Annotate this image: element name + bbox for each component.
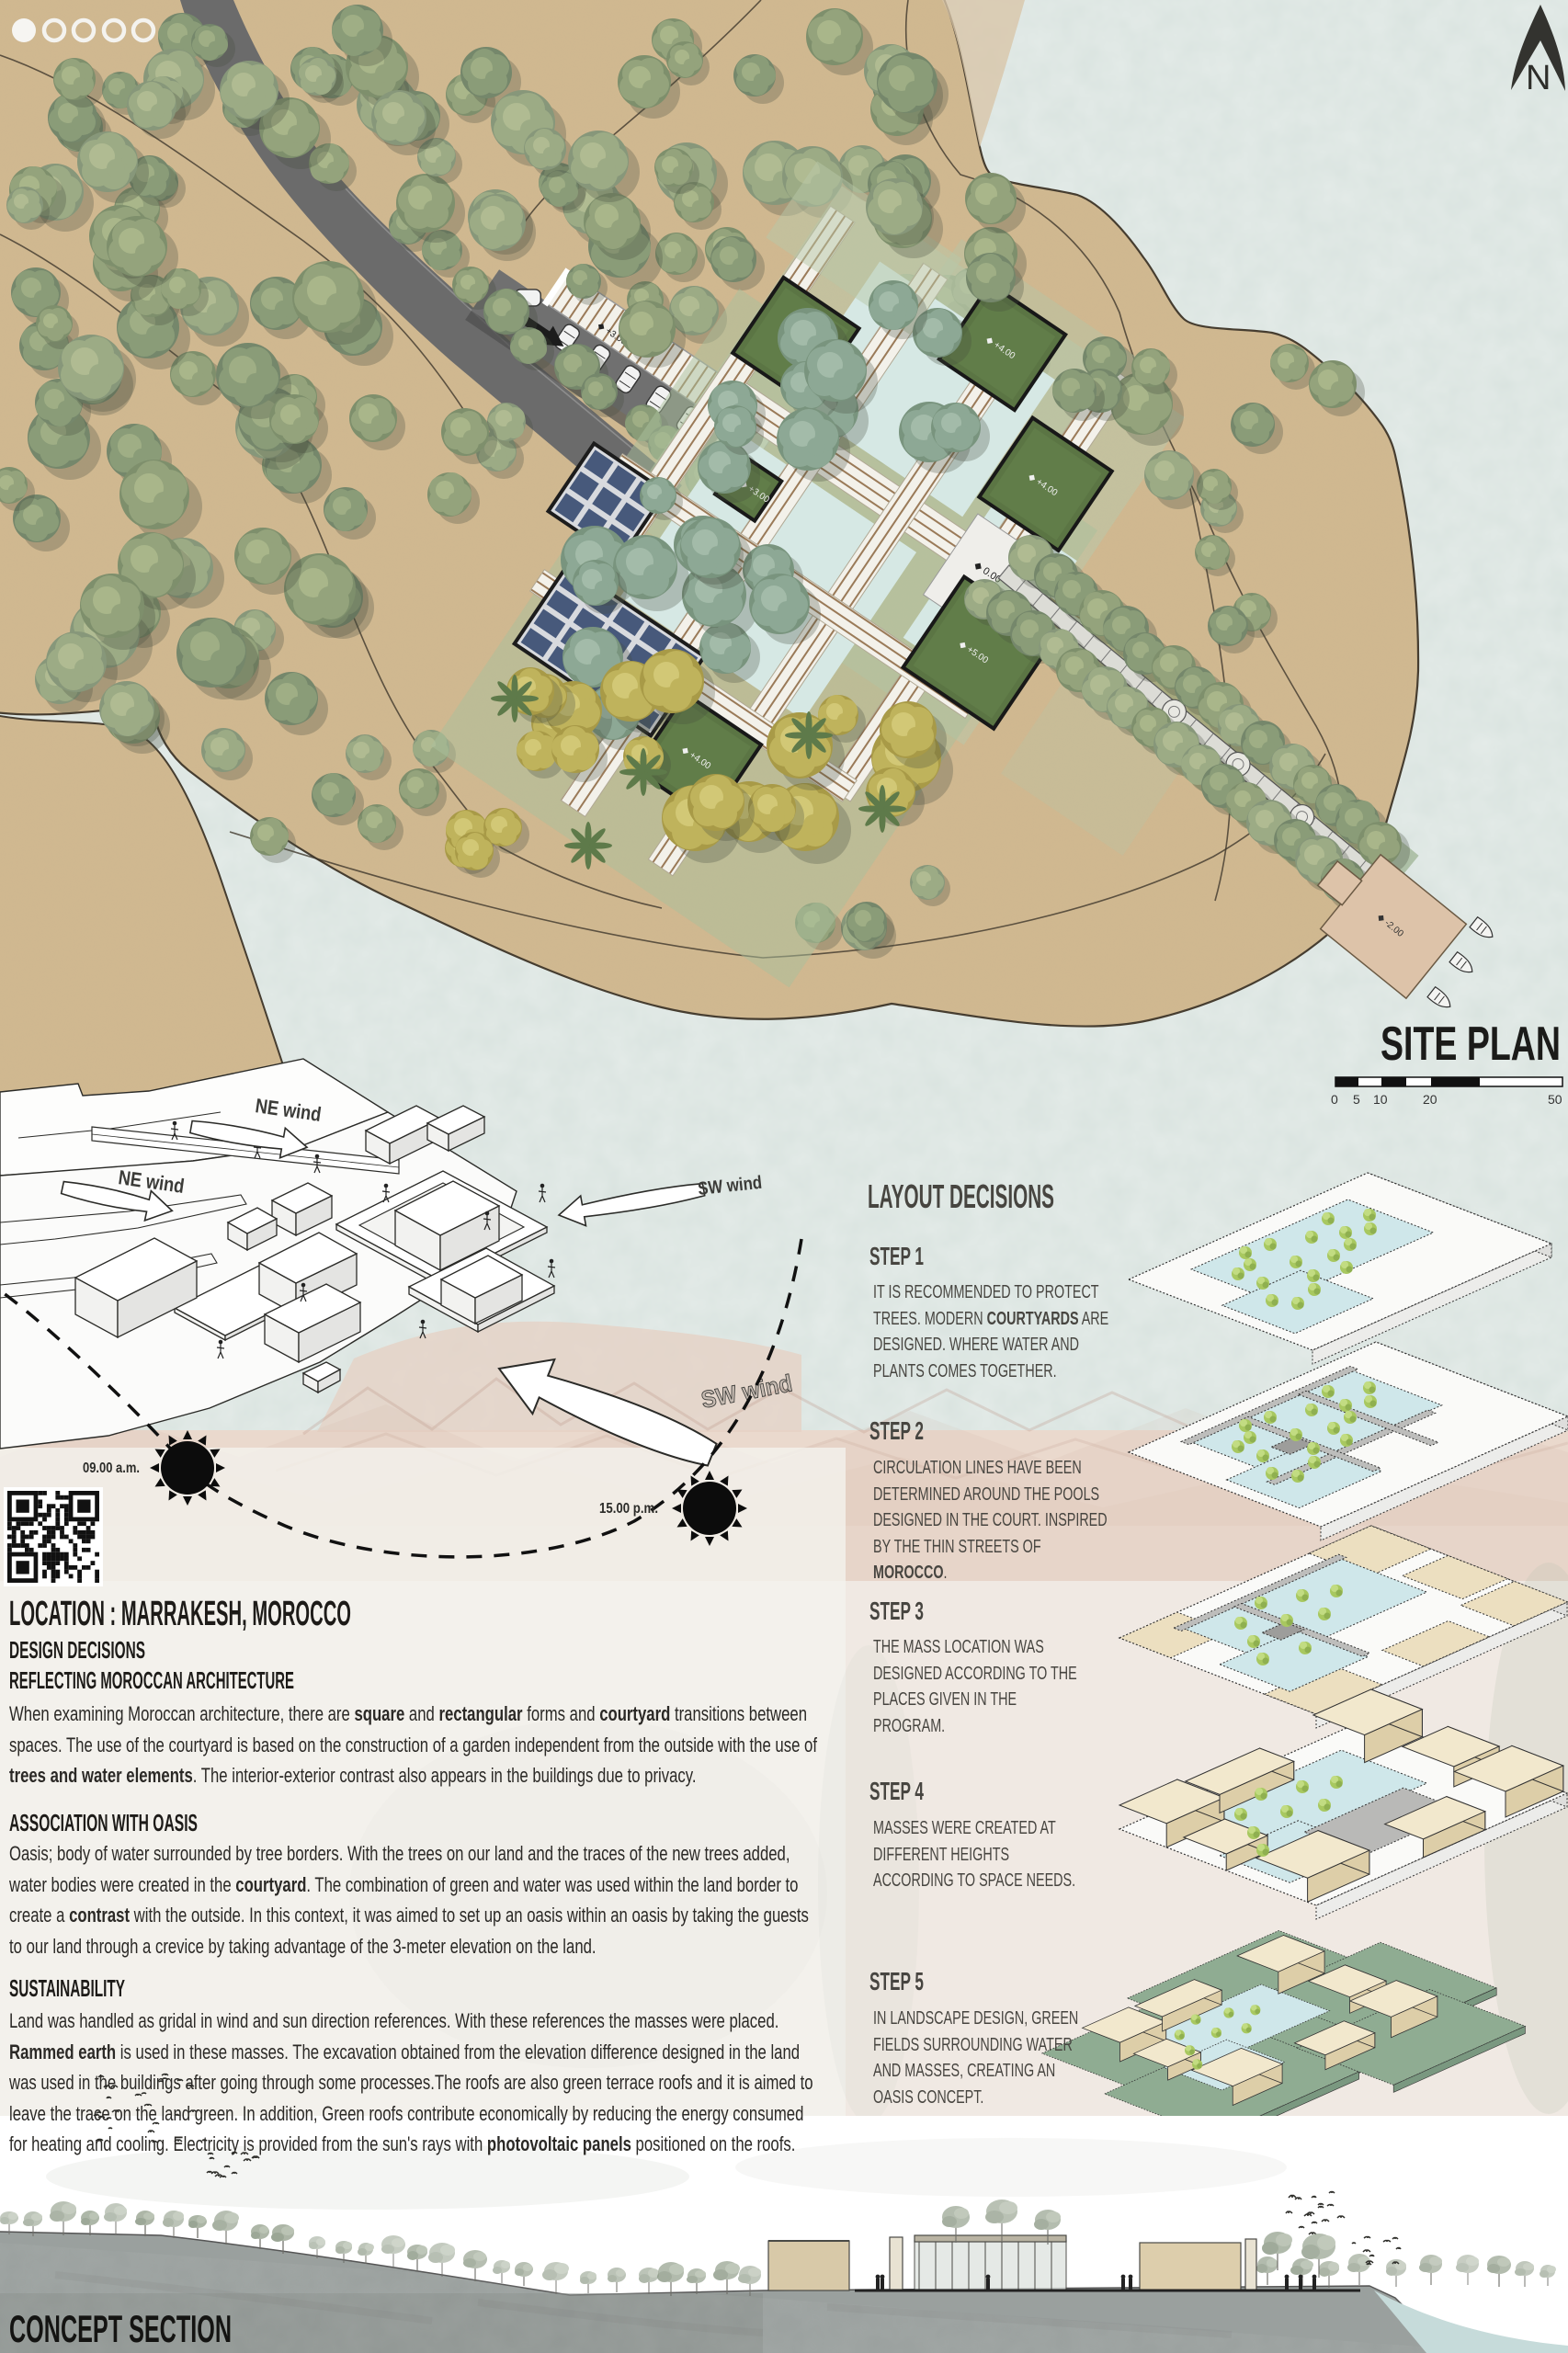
svg-text:0: 0	[1331, 1092, 1338, 1107]
svg-text:LOCATION : MARRAKESH, MOROCCO: LOCATION : MARRAKESH, MOROCCO	[9, 1595, 351, 1633]
svg-text:15.00 p.m.: 15.00 p.m.	[599, 1501, 658, 1517]
svg-text:SUSTAINABILITY: SUSTAINABILITY	[9, 1974, 125, 2002]
svg-text:LAYOUT DECISIONS: LAYOUT DECISIONS	[868, 1177, 1054, 1215]
svg-text:SITE PLAN: SITE PLAN	[1381, 1017, 1561, 1071]
svg-text:N: N	[1526, 59, 1551, 97]
svg-text:09.00 a.m.: 09.00 a.m.	[83, 1461, 140, 1476]
svg-text:50: 50	[1548, 1092, 1562, 1107]
svg-text:5: 5	[1353, 1092, 1360, 1107]
svg-text:10: 10	[1373, 1092, 1388, 1107]
svg-text:DESIGN DECISIONS: DESIGN DECISIONS	[9, 1636, 145, 1664]
svg-text:CONCEPT SECTION: CONCEPT SECTION	[9, 2307, 232, 2350]
svg-text:STEP 1: STEP 1	[869, 1242, 924, 1270]
svg-text:STEP 5: STEP 5	[869, 1967, 924, 1995]
svg-text:STEP 4: STEP 4	[869, 1777, 924, 1805]
svg-text:20: 20	[1423, 1092, 1437, 1107]
svg-text:STEP 3: STEP 3	[869, 1597, 924, 1625]
svg-text:REFLECTING MOROCCAN ARCHITECTU: REFLECTING MOROCCAN ARCHITECTURE	[9, 1666, 294, 1694]
svg-text:STEP 2: STEP 2	[869, 1416, 924, 1445]
svg-text:ASSOCIATION WITH OASIS: ASSOCIATION WITH OASIS	[9, 1809, 198, 1836]
